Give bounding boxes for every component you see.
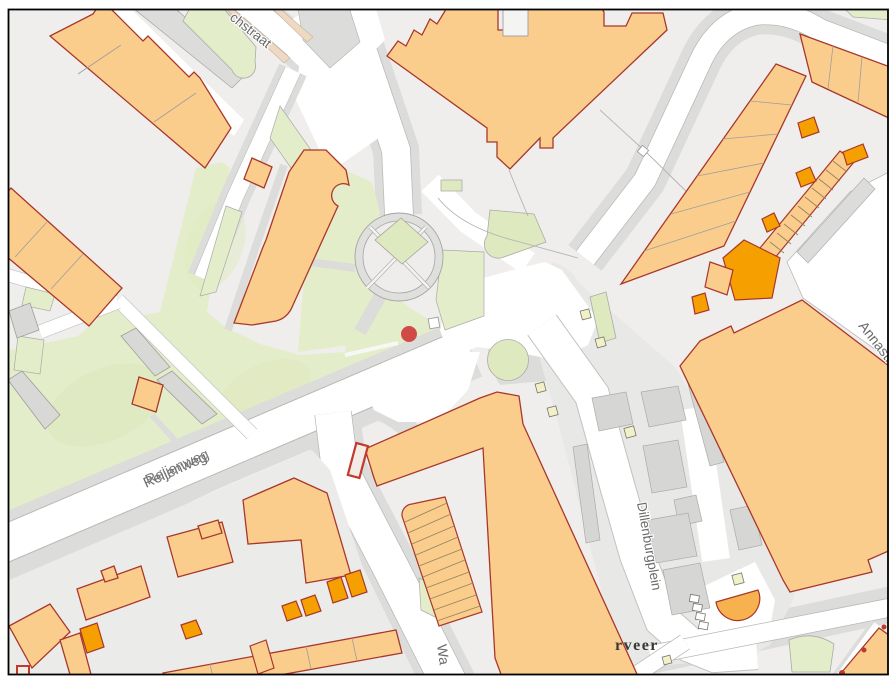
svg-text:Wa: Wa	[434, 643, 453, 666]
svg-text:rveer: rveer	[615, 637, 659, 654]
